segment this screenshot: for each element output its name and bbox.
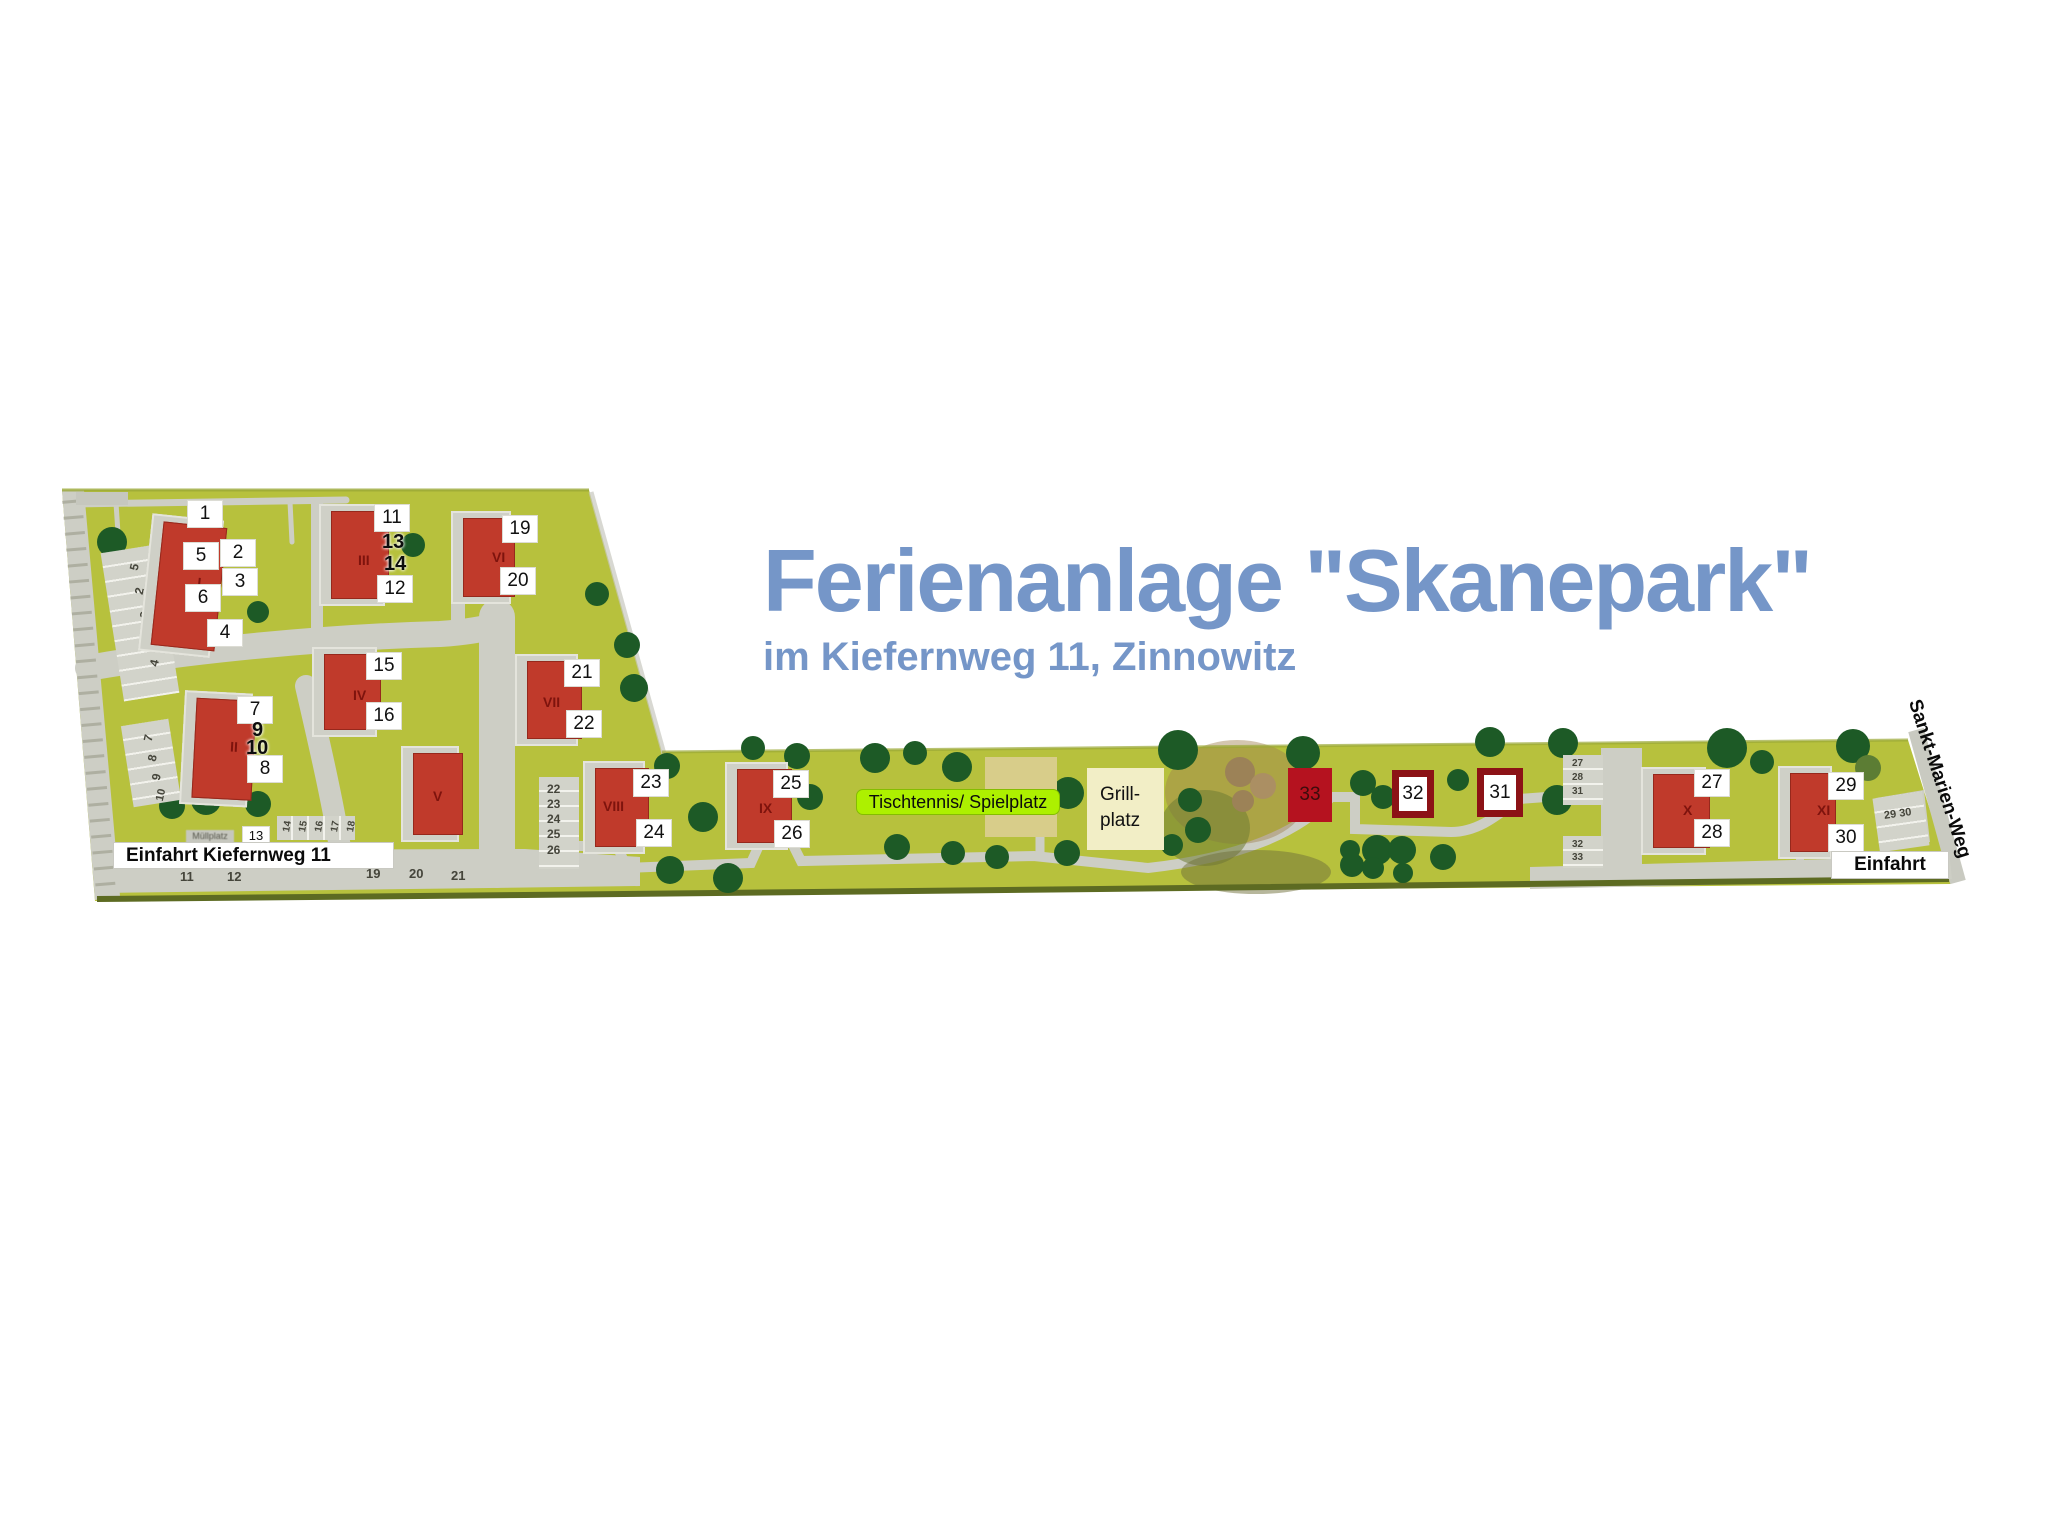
site-plan-page: 5236478910141516171822232425262728313233… bbox=[0, 0, 2048, 1538]
parking-number: 21 bbox=[451, 868, 465, 883]
tree-icon bbox=[941, 841, 965, 865]
page-subtitle: im Kiefernweg 11, Zinnowitz bbox=[763, 633, 1811, 681]
tree-icon bbox=[1388, 836, 1416, 864]
apartment-marker-1: 1 bbox=[188, 501, 222, 527]
parking-number: 11 bbox=[180, 869, 194, 884]
parking-number: 24 bbox=[547, 812, 560, 826]
tree-icon bbox=[247, 601, 269, 623]
tree-icon bbox=[1750, 750, 1774, 774]
tree-icon bbox=[1054, 840, 1080, 866]
apartment-marker-19: 19 bbox=[503, 516, 537, 542]
building-roman-numeral: VII bbox=[543, 695, 560, 709]
tree-icon bbox=[1447, 769, 1469, 791]
tree-icon bbox=[1178, 788, 1202, 812]
parking-number: 18 bbox=[345, 820, 358, 833]
tree-icon bbox=[1707, 728, 1747, 768]
parking-number: 20 bbox=[409, 866, 423, 881]
parking-number: 23 bbox=[547, 797, 560, 811]
building-roman-numeral: III bbox=[358, 553, 370, 567]
apartment-marker-10: 10 bbox=[246, 738, 268, 758]
tree-icon bbox=[656, 856, 684, 884]
tree-icon bbox=[1340, 840, 1360, 860]
parking-number: 25 bbox=[547, 827, 560, 841]
building-roman-numeral: IV bbox=[353, 688, 366, 702]
building-roman-numeral: IX bbox=[759, 801, 772, 815]
grill-label-line2: platz bbox=[1100, 810, 1140, 831]
tree-icon bbox=[1232, 790, 1254, 812]
tree-icon bbox=[688, 802, 718, 832]
apartment-marker-23: 23 bbox=[634, 770, 668, 796]
tree-icon bbox=[620, 674, 648, 702]
parking-number: 22 bbox=[547, 782, 560, 796]
apartment-marker-6: 6 bbox=[186, 585, 220, 611]
apartment-marker-16: 16 bbox=[367, 703, 401, 729]
apartment-marker-27: 27 bbox=[1695, 770, 1729, 796]
parking-number: 12 bbox=[227, 869, 241, 884]
parking-strip bbox=[1872, 792, 1929, 852]
building-number-32: 32 bbox=[1399, 777, 1427, 811]
tree-icon bbox=[884, 834, 910, 860]
building-number-31: 31 bbox=[1484, 775, 1516, 810]
apartment-marker-4: 4 bbox=[208, 620, 242, 646]
apartment-marker-12: 12 bbox=[378, 576, 412, 602]
parking-number: 14 bbox=[281, 820, 294, 833]
tree-icon bbox=[860, 743, 890, 773]
parking-number: 15 bbox=[297, 820, 310, 833]
playground-label: Tischtennis/ Spielplatz bbox=[856, 789, 1060, 815]
apartment-marker-8: 8 bbox=[248, 756, 282, 782]
grill-area-label: Grill-platz bbox=[1087, 768, 1164, 850]
apartment-marker-20: 20 bbox=[501, 568, 535, 594]
apartment-marker-3: 3 bbox=[223, 569, 257, 595]
apartment-marker-22: 22 bbox=[567, 711, 601, 737]
apartment-marker-21: 21 bbox=[565, 660, 599, 686]
parking-number: 33 bbox=[1572, 852, 1583, 863]
building-roman-numeral: VIII bbox=[603, 799, 624, 813]
tree-icon bbox=[1362, 857, 1384, 879]
building-31: 31 bbox=[1477, 768, 1523, 817]
apartment-marker-30: 30 bbox=[1829, 825, 1863, 851]
tree-icon bbox=[1475, 727, 1505, 757]
tree-icon bbox=[1185, 817, 1211, 843]
tree-icon bbox=[713, 863, 743, 893]
page-title: Ferienanlage "Skanepark" bbox=[763, 535, 1811, 627]
apartment-marker-25: 25 bbox=[774, 771, 808, 797]
parking-number: 27 bbox=[1572, 758, 1583, 769]
tree-icon bbox=[741, 736, 765, 760]
apartment-marker-26: 26 bbox=[775, 821, 809, 847]
title-block: Ferienanlage "Skanepark" im Kiefernweg 1… bbox=[763, 535, 1811, 681]
apartment-marker-29: 29 bbox=[1829, 773, 1863, 799]
parking-number: 17 bbox=[329, 820, 342, 833]
apartment-marker-2: 2 bbox=[221, 540, 255, 566]
apartment-marker-11: 11 bbox=[375, 505, 409, 531]
apartment-marker-28: 28 bbox=[1695, 820, 1729, 846]
tree-icon bbox=[1250, 773, 1276, 799]
building-roman-numeral: II bbox=[230, 740, 239, 754]
building-V: V bbox=[401, 746, 467, 842]
parking-number: 26 bbox=[547, 843, 560, 857]
tree-icon bbox=[942, 752, 972, 782]
tree-icon bbox=[1430, 844, 1456, 870]
apartment-marker-5: 5 bbox=[184, 543, 218, 569]
apartment-marker-15: 15 bbox=[367, 653, 401, 679]
parking-number: 16 bbox=[313, 820, 326, 833]
tree-icon bbox=[903, 741, 927, 765]
parking-number: 31 bbox=[1572, 786, 1583, 797]
apartment-marker-24: 24 bbox=[637, 820, 671, 846]
building-roman-numeral: XI bbox=[1817, 803, 1830, 817]
small-map-label bbox=[76, 492, 128, 505]
apartment-marker-13: 13 bbox=[382, 532, 404, 552]
tree-icon bbox=[1548, 728, 1578, 758]
tree-icon bbox=[985, 845, 1009, 869]
building-roman-numeral: X bbox=[1683, 803, 1692, 817]
tree-icon bbox=[1158, 730, 1198, 770]
parking-number: 28 bbox=[1572, 772, 1583, 783]
building-roman-numeral: VI bbox=[492, 550, 505, 564]
tree-icon bbox=[1161, 834, 1183, 856]
tree-icon bbox=[614, 632, 640, 658]
tree-icon bbox=[1393, 863, 1413, 883]
parking-number: 32 bbox=[1572, 839, 1583, 850]
apartment-marker-14: 14 bbox=[384, 554, 406, 574]
building-roman-numeral: V bbox=[433, 789, 442, 803]
tree-icon bbox=[1286, 736, 1320, 770]
entrance-right-label: Einfahrt bbox=[1831, 851, 1949, 879]
grill-label-line1: Grill- bbox=[1100, 784, 1140, 805]
building-32: 32 bbox=[1392, 770, 1434, 818]
building-33: 33 bbox=[1288, 768, 1332, 822]
tree-icon bbox=[585, 582, 609, 606]
entrance-kiefernweg-label: Einfahrt Kiefernweg 11 bbox=[113, 842, 394, 869]
